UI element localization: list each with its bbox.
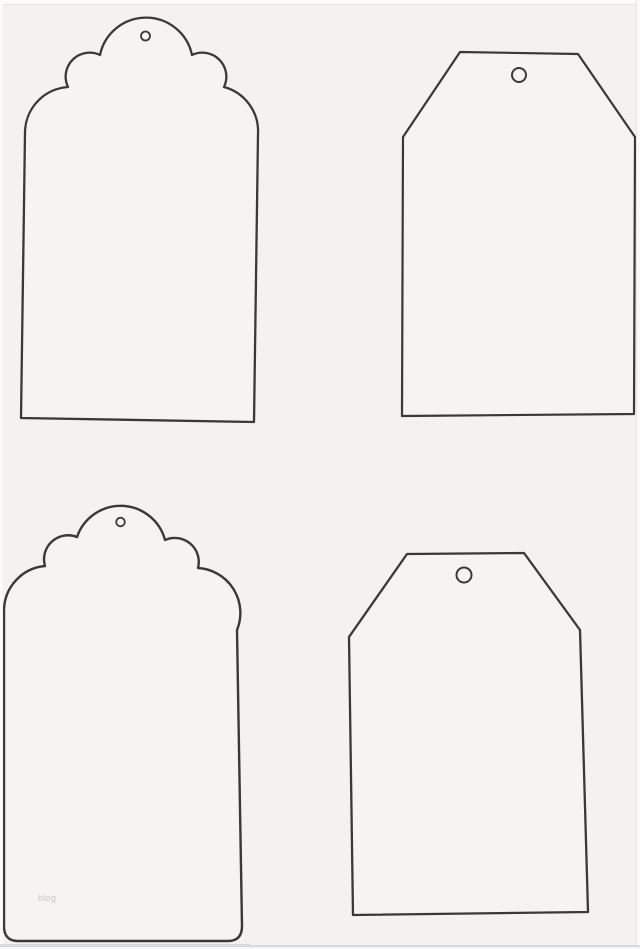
scalloped-tag-bottom-left xyxy=(4,506,242,941)
watermark-text: blog xyxy=(38,893,56,904)
tags-svg xyxy=(0,0,640,949)
scalloped-tag-bottom-left-outline xyxy=(4,506,242,941)
angled-tag-bottom-right-outline xyxy=(349,553,588,915)
scan-edge-left xyxy=(0,0,3,949)
angled-tag-top-right-outline xyxy=(402,52,635,416)
angled-tag-bottom-right xyxy=(349,553,588,915)
scan-edge-top xyxy=(0,0,640,5)
template-page: blog xyxy=(0,0,640,949)
angled-tag-top-right xyxy=(402,52,635,416)
scalloped-tag-top-left-outline xyxy=(21,18,258,422)
scalloped-tag-top-left xyxy=(21,18,258,422)
scan-edge-right xyxy=(636,0,640,949)
